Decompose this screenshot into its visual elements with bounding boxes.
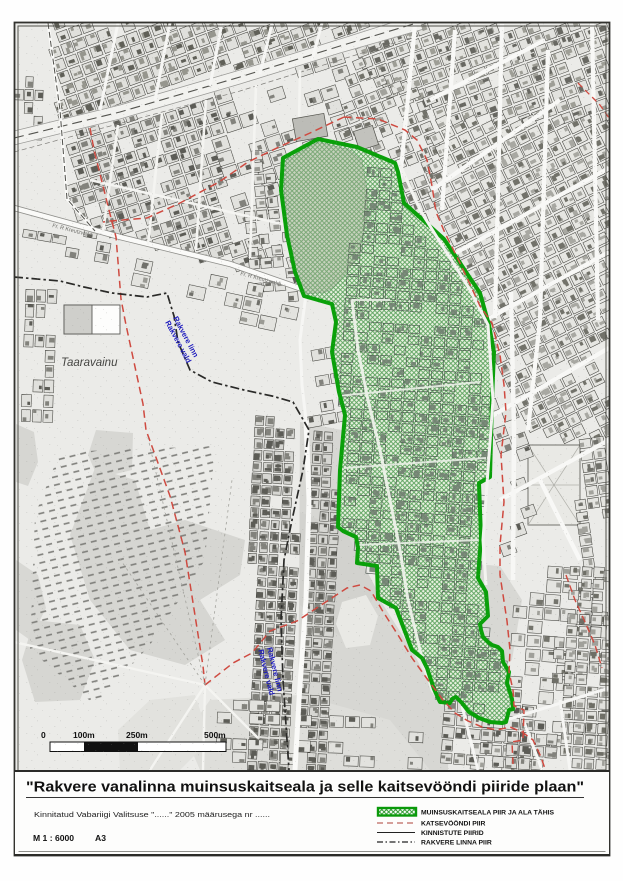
svg-text:RAKVERE LINNA PIIR: RAKVERE LINNA PIIR [421, 840, 492, 847]
svg-text:"Rakvere vanalinna muinsuskait: "Rakvere vanalinna muinsuskaitseala ja s… [26, 780, 584, 796]
svg-text:KINNISTUTE PIIRID: KINNISTUTE PIIRID [421, 830, 484, 837]
svg-text:A3: A3 [95, 833, 106, 843]
svg-text:M 1 : 6000: M 1 : 6000 [33, 833, 74, 843]
svg-text:KATSEVÖÖNDI PIIR: KATSEVÖÖNDI PIIR [421, 819, 486, 828]
svg-text:Kinnitatud Vabariigi Valitsuse: Kinnitatud Vabariigi Valitsuse "......" … [34, 810, 270, 819]
svg-text:MUINSUSKAITSEALA PIIR JA ALA T: MUINSUSKAITSEALA PIIR JA ALA TÄHIS [421, 809, 555, 817]
